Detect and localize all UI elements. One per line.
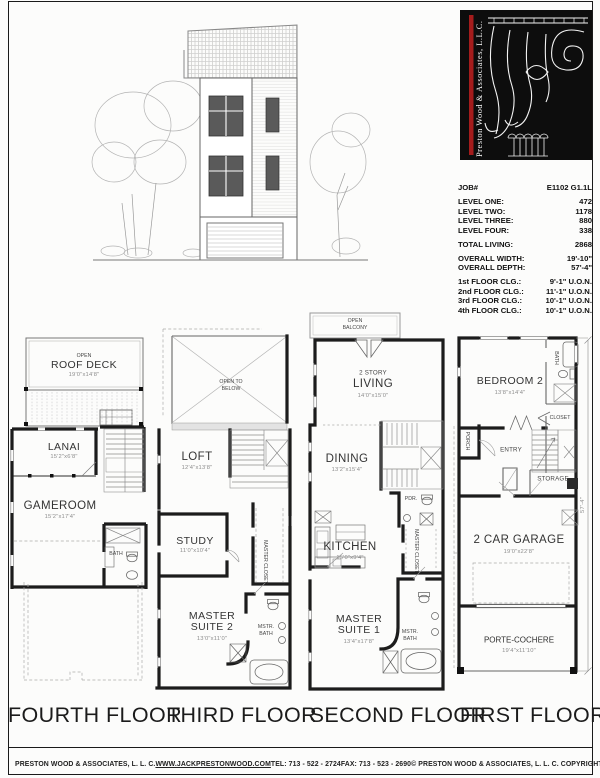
room-label-roof-deck: ROOF DECK xyxy=(51,359,117,371)
total-living-row: TOTAL LIVING: 2868 xyxy=(458,240,592,250)
room-label-master-suite1-l2: SUITE 1 xyxy=(338,624,380,636)
info-label: LEVEL ONE: xyxy=(458,197,504,207)
room-label-mstr: MSTR. xyxy=(402,629,418,635)
info-row: 2nd FLOOR CLG.:11'-1" U.O.N. xyxy=(458,287,592,297)
stairs-icon xyxy=(82,429,144,492)
room-label-bedroom2: BEDROOM 2 xyxy=(477,375,544,387)
plan-fourth-floor: OPEN ROOF DECK 19'0"x14'8" LANAI 15'2"x6… xyxy=(8,330,148,696)
deck-hatch xyxy=(32,392,137,424)
info-value: 2868 xyxy=(575,240,592,250)
stairs-icon xyxy=(230,430,288,488)
room-label-master-closet: MASTER CLOSET xyxy=(262,540,268,584)
room-dims-loft: 12'4"x13'8" xyxy=(182,465,213,471)
room-label-mstr-bath: BATH xyxy=(259,631,272,637)
room-dims-dining: 13'2"x15'4" xyxy=(332,467,363,473)
room-label-balcony-l2: BALCONY xyxy=(343,325,368,331)
floor-title-first: FIRST FLOOR xyxy=(460,703,600,728)
room-label-loft: LOFT xyxy=(182,451,213,463)
room-label-bath: BATH xyxy=(553,351,559,364)
info-label: LEVEL FOUR: xyxy=(458,226,509,236)
house-elevation xyxy=(184,25,297,260)
room-label-master-closet: MASTER CLOSET xyxy=(413,529,419,573)
info-label: LEVEL THREE: xyxy=(458,216,513,226)
info-label: TOTAL LIVING: xyxy=(458,240,513,250)
plan-sheet-page: Preston Wood & Associates, L.L.C. JOB# E… xyxy=(0,0,600,778)
room-label-kitchen: KITCHEN xyxy=(323,541,376,553)
overall-dims-group: OVERALL WIDTH:19'-10" OVERALL DEPTH:57'-… xyxy=(458,254,592,273)
room-label-garage: 2 CAR GARAGE xyxy=(473,534,564,546)
info-label: 1st FLOOR CLG.: xyxy=(458,277,521,287)
logo-red-bar xyxy=(469,15,474,155)
room-label-entry: ENTRY xyxy=(500,447,522,454)
doors xyxy=(227,550,266,594)
room-label-living-l2: LIVING xyxy=(353,378,393,390)
info-label: 3rd FLOOR CLG.: xyxy=(458,296,522,306)
room-dims-living: 14'0"x15'0" xyxy=(358,393,389,399)
footer-copyright: © PRESTON WOOD & ASSOCIATES, L. L. C. CO… xyxy=(411,761,600,768)
room-label-balcony-l1: OPEN xyxy=(348,318,363,324)
info-value: 9'-1" U.O.N. xyxy=(550,277,592,287)
floor-title-third: THIRD FLOOR xyxy=(167,703,317,728)
room-dims-porte-cochere: 19'4"x11'10" xyxy=(502,648,536,654)
dashed-lines xyxy=(454,426,569,668)
dashed-lines xyxy=(14,541,142,680)
info-row: 3rd FLOOR CLG.:10'-1" U.O.N. xyxy=(458,296,592,306)
room-label-below: BELOW xyxy=(222,386,241,392)
info-label: OVERALL DEPTH: xyxy=(458,263,525,273)
linen-x-icon xyxy=(554,384,576,402)
logo-company-name: Preston Wood & Associates, L.L.C. xyxy=(475,21,484,157)
info-value: E1102 G1.1L xyxy=(547,183,592,193)
info-row: LEVEL FOUR:338 xyxy=(458,226,592,236)
footer-divider xyxy=(8,747,593,748)
info-value: 1178 xyxy=(575,207,592,217)
room-dims-bedroom2: 13'8"x14'4" xyxy=(495,390,526,396)
front-elevation-drawing xyxy=(88,10,373,272)
doors xyxy=(479,412,550,496)
info-label: JOB# xyxy=(458,183,478,193)
room-label-bath: BATH xyxy=(109,551,122,557)
info-label: LEVEL TWO: xyxy=(458,207,505,217)
fixtures-icon xyxy=(230,600,288,685)
stairs-icon xyxy=(381,421,443,489)
room-label-mstr: MSTR. xyxy=(258,624,274,630)
room-label-master-suite2-l2: SUITE 2 xyxy=(191,621,233,633)
room-label-mstr-bath: BATH xyxy=(403,636,416,642)
company-logo: Preston Wood & Associates, L.L.C. xyxy=(460,10,592,160)
room-dims-gameroom: 15'2"x17'4" xyxy=(45,514,76,520)
room-dims-roof-deck: 19'0"x14'8" xyxy=(69,372,100,378)
info-row: OVERALL DEPTH:57'-4" xyxy=(458,263,592,273)
room-dims-lanai: 15'2"x6'8" xyxy=(50,454,77,460)
footer-website-link: WWW.JACKPRESTONWOOD.COM xyxy=(155,761,270,768)
info-value: 10'-1" U.O.N. xyxy=(546,296,593,306)
room-label-study: STUDY xyxy=(176,535,214,547)
room-dims-garage: 19'0"x22'8" xyxy=(504,549,535,555)
job-info-panel: JOB# E1102 G1.1L LEVEL ONE:472 LEVEL TWO… xyxy=(458,183,592,316)
room-dims-kitchen: 15'0"x9'4" xyxy=(336,555,363,561)
job-number-row: JOB# E1102 G1.1L xyxy=(458,183,592,193)
room-dims-study: 11'0"x10'4" xyxy=(180,548,210,554)
room-label-open-to: OPEN TO xyxy=(219,379,242,385)
info-row: OVERALL WIDTH:19'-10" xyxy=(458,254,592,264)
room-label-dining: DINING xyxy=(326,453,369,465)
info-value: 338 xyxy=(579,226,592,236)
info-value: 11'-1" U.O.N. xyxy=(546,287,592,297)
info-row: 1st FLOOR CLG.:9'-1" U.O.N. xyxy=(458,277,592,287)
info-label: 2nd FLOOR CLG.: xyxy=(458,287,524,297)
plan-third-floor: OPEN TO BELOW LOFT 12'4"x13'8" STUDY 11'… xyxy=(150,326,294,696)
plan-first-floor: BEDROOM 2 13'8"x14'4" BATH CLOSET PORCH … xyxy=(451,308,597,696)
room-label-storage: STORAGE xyxy=(537,476,569,483)
room-label-porch: PORCH xyxy=(464,432,470,451)
room-dims-master-suite2: 13'0"x11'0" xyxy=(197,636,227,642)
room-label-living-l1: 2 STORY xyxy=(359,370,387,377)
room-label-porte-cochere: PORTE-COCHERE xyxy=(484,636,554,645)
room-label-pdr: PDR. xyxy=(405,496,417,502)
info-value: 19'-10" xyxy=(567,254,592,264)
footer-bar: PRESTON WOOD & ASSOCIATES, L. L. C. WWW.… xyxy=(15,761,587,768)
info-row: LEVEL ONE:472 xyxy=(458,197,592,207)
plan-second-floor: OPEN BALCONY 2 STORY LIVING 14'0"x15'0" … xyxy=(303,311,449,696)
info-value: 57'-4" xyxy=(571,263,592,273)
info-value: 880 xyxy=(579,216,592,226)
info-value: 472 xyxy=(579,197,592,207)
info-label: OVERALL WIDTH: xyxy=(458,254,524,264)
room-label-gameroom: GAMEROOM xyxy=(24,500,97,512)
room-label-lanai: LANAI xyxy=(48,441,80,453)
footer-company: PRESTON WOOD & ASSOCIATES, L. L. C. xyxy=(15,761,155,768)
floor-title-fourth: FOURTH FLOOR xyxy=(8,703,182,728)
room-dims-master-suite1: 13'4"x17'8" xyxy=(344,639,375,645)
footer-fax: FAX: 713 - 523 - 2690 xyxy=(341,761,411,768)
info-row: LEVEL THREE:880 xyxy=(458,216,592,226)
info-row: LEVEL TWO:1178 xyxy=(458,207,592,217)
fourth-floor-linework xyxy=(8,330,148,696)
level-areas-group: LEVEL ONE:472 LEVEL TWO:1178 LEVEL THREE… xyxy=(458,197,592,235)
room-label-closet: CLOSET xyxy=(550,415,571,421)
overall-depth-dimension: 57'-4" xyxy=(580,497,586,513)
footer-tel: TEL: 713 - 522 - 2724 xyxy=(271,761,341,768)
closet-x-icon xyxy=(106,528,140,543)
stairs-icon xyxy=(532,430,576,472)
